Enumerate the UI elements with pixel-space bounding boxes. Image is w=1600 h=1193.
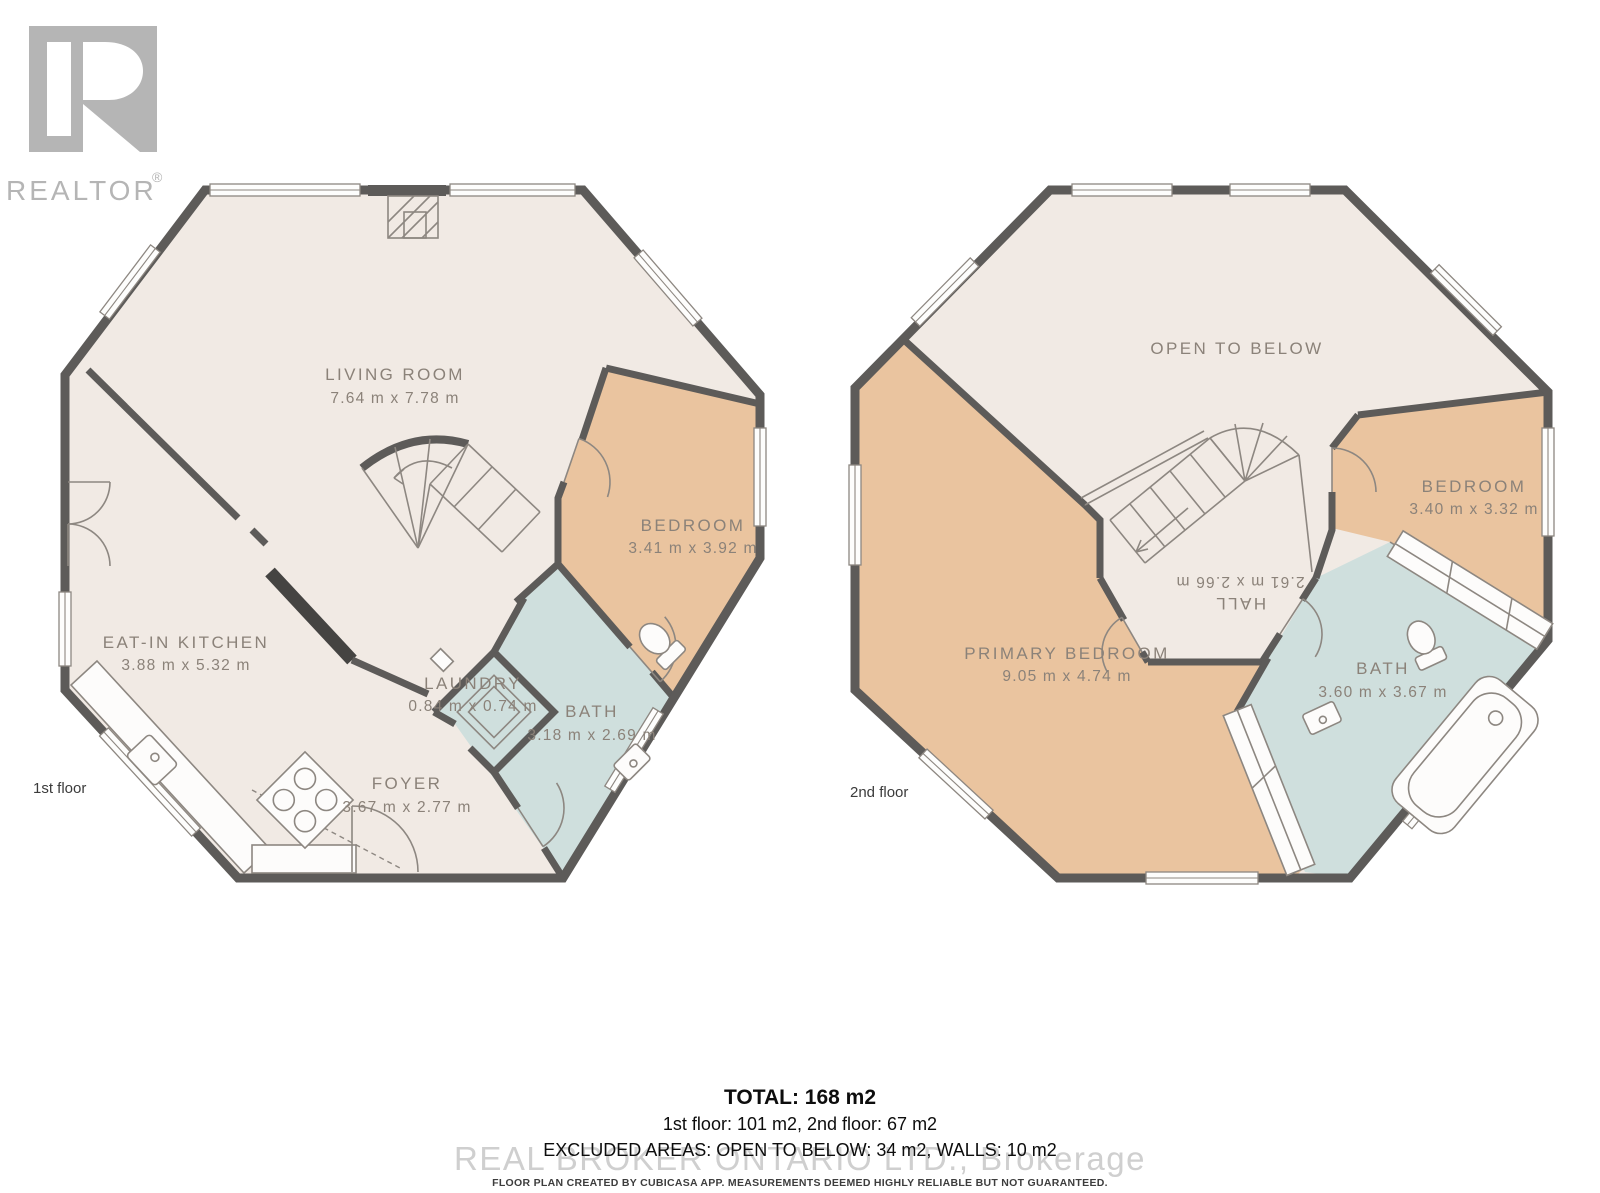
room-label-hall: HALL [1214, 594, 1266, 613]
room-label-living-room: LIVING ROOM [325, 365, 465, 384]
summary-footer: REAL BROKER ONTARIO LTD., Brokerage TOTA… [454, 1086, 1146, 1189]
window-icon [849, 465, 861, 565]
room-label-bath1: BATH [565, 702, 619, 721]
room-dims-hall: 2.61 m x 2.66 m [1175, 573, 1304, 590]
room-label-bedroom1: BEDROOM [641, 516, 746, 535]
floor1-plan: LIVING ROOM 7.64 m x 7.78 m BEDROOM 3.41… [59, 184, 766, 878]
window-icon [1072, 184, 1172, 196]
room-dims-bath2: 3.60 m x 3.67 m [1318, 684, 1447, 701]
disclaimer-text: FLOOR PLAN CREATED BY CUBICASA APP. MEAS… [492, 1177, 1108, 1189]
room-label-open-to-below: OPEN TO BELOW [1150, 339, 1323, 358]
registered-mark: ® [152, 169, 163, 185]
room-dims-foyer: 3.67 m x 2.77 m [342, 799, 471, 816]
window-icon [1230, 184, 1310, 196]
window-icon [210, 184, 360, 196]
floor-areas-text: 1st floor: 101 m2, 2nd floor: 67 m2 [663, 1114, 937, 1134]
window-icon [1542, 428, 1554, 536]
room-label-laundry: LAUNDRY [424, 674, 522, 693]
room-label-bedroom2: BEDROOM [1422, 477, 1527, 496]
room-dims-kitchen: 3.88 m x 5.32 m [121, 657, 250, 674]
room-dims-living-room: 7.64 m x 7.78 m [330, 390, 459, 407]
room-dims-laundry: 0.84 m x 0.74 m [408, 698, 537, 715]
room-dims-bedroom1: 3.41 m x 3.92 m [628, 540, 757, 557]
room-dims-bedroom2: 3.40 m x 3.32 m [1409, 501, 1538, 518]
room-dims-bath1: 3.18 m x 2.69 m [527, 727, 656, 744]
room-dims-primary-bedroom: 9.05 m x 4.74 m [1002, 668, 1131, 685]
room-label-bath2: BATH [1356, 659, 1410, 678]
realtor-logo-icon: REALTOR ® [6, 26, 163, 206]
floor2-plan: OPEN TO BELOW BEDROOM 3.40 m x 3.32 m PR… [849, 184, 1554, 884]
floorplan-page: REALTOR ® [0, 0, 1600, 1193]
total-area-text: TOTAL: 168 m2 [724, 1086, 876, 1109]
room-label-kitchen: EAT-IN KITCHEN [103, 633, 269, 652]
excluded-areas-text: EXCLUDED AREAS: OPEN TO BELOW: 34 m2, WA… [543, 1140, 1057, 1160]
floor1-tag: 1st floor [33, 780, 86, 797]
floorplan-canvas: REALTOR ® [0, 0, 1600, 1193]
window-icon [754, 428, 766, 526]
window-icon [450, 184, 575, 196]
room-label-primary-bedroom: PRIMARY BEDROOM [964, 644, 1169, 663]
floor2-tag: 2nd floor [850, 784, 908, 801]
window-icon [1146, 872, 1258, 884]
window-icon [59, 592, 71, 666]
room-label-foyer: FOYER [372, 774, 443, 793]
realtor-logo-text: REALTOR [6, 175, 157, 206]
